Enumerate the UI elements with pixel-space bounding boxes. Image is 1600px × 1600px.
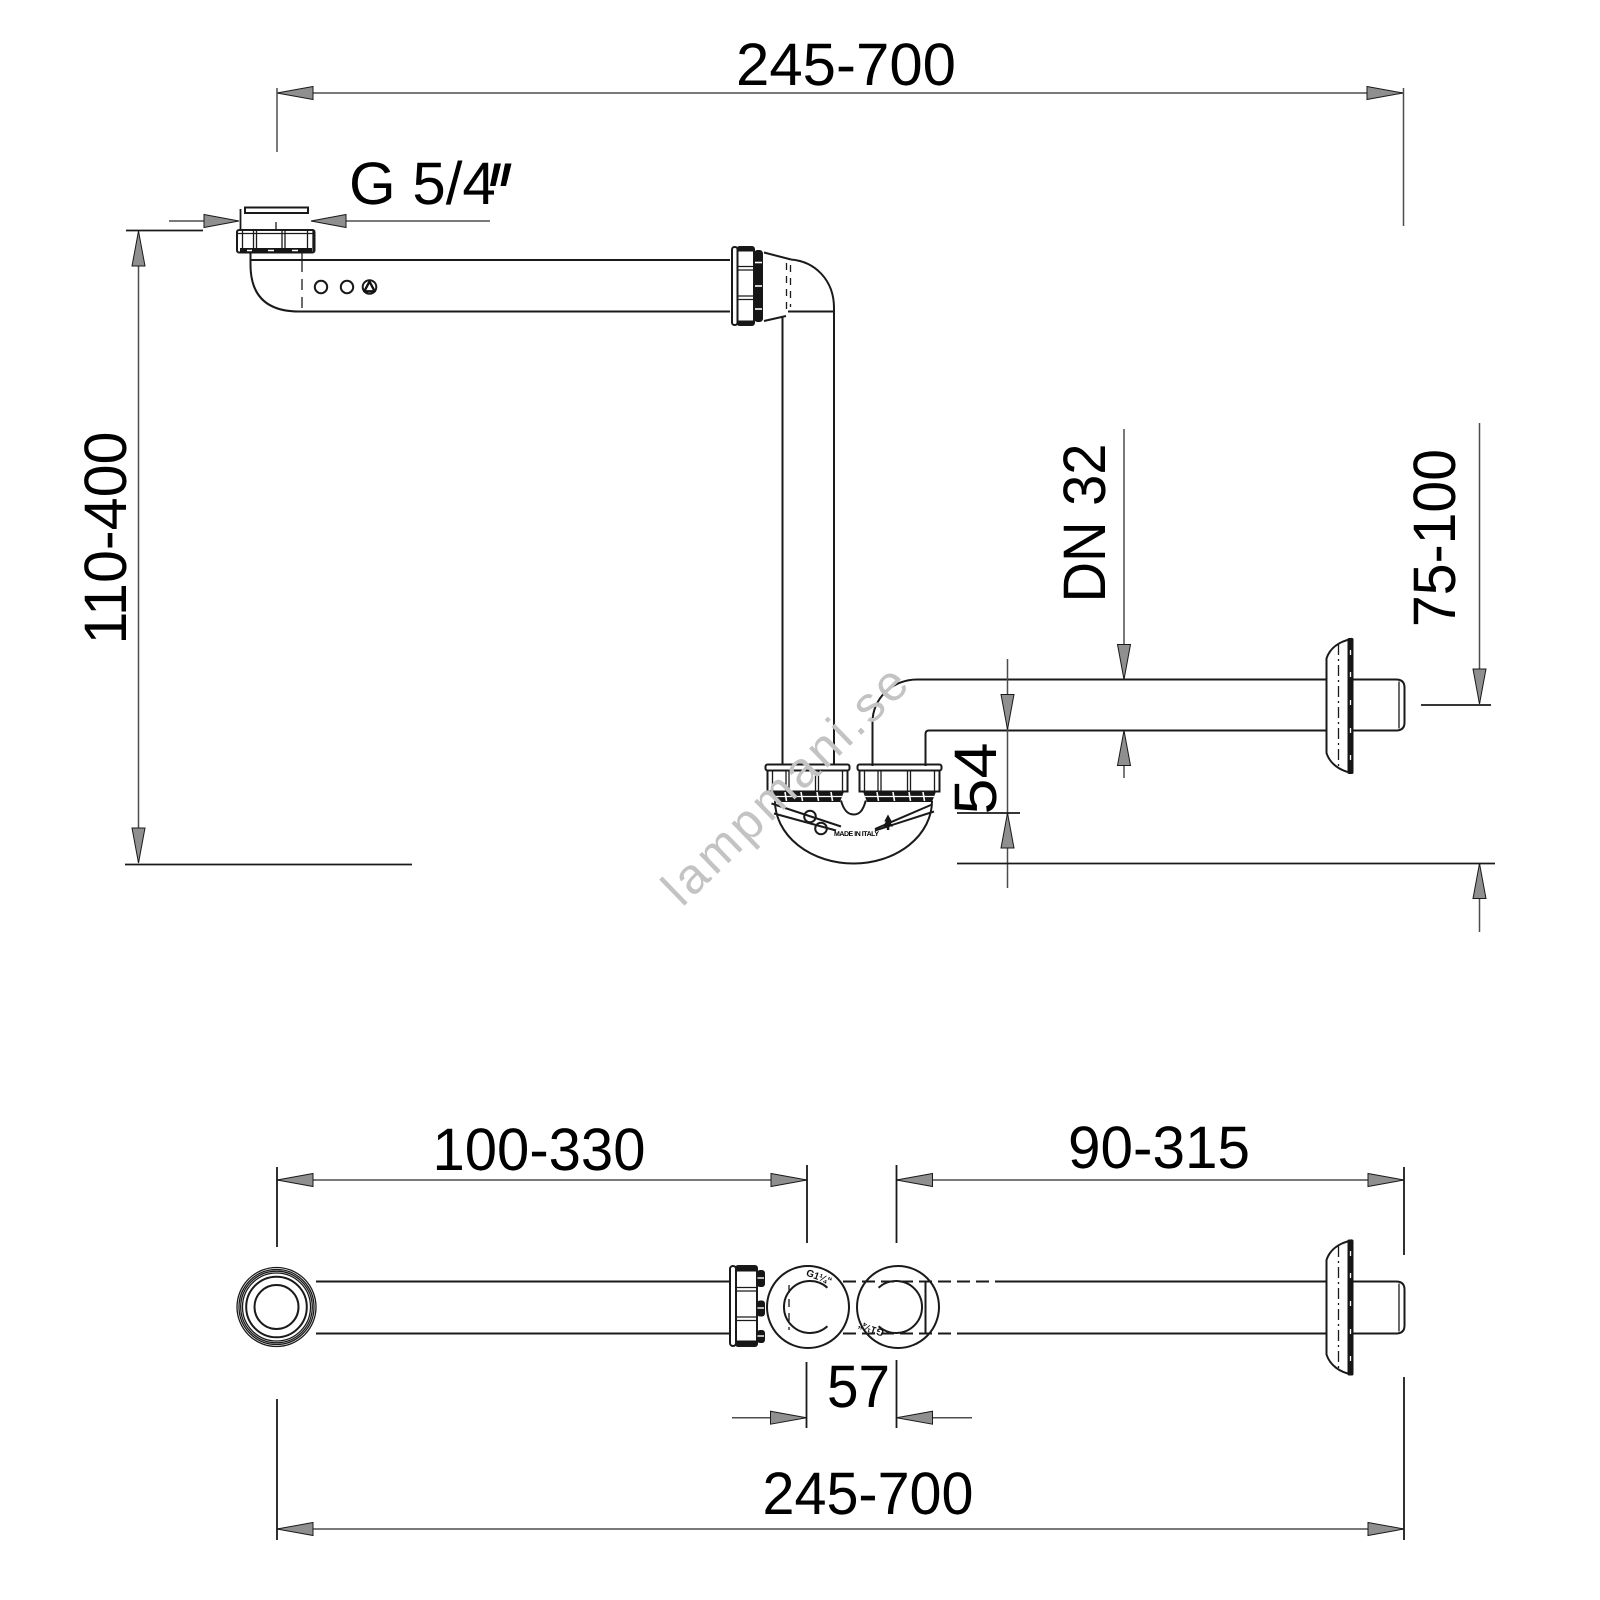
svg-text:54: 54 <box>942 743 1009 815</box>
svg-text:110-400: 110-400 <box>72 432 139 645</box>
svg-text:75-100: 75-100 <box>1401 449 1468 627</box>
svg-text:90-315: 90-315 <box>1068 1114 1250 1181</box>
svg-text:245-700: 245-700 <box>763 1460 974 1527</box>
svg-text:57: 57 <box>827 1353 890 1420</box>
svg-text:G 5/4: G 5/4 <box>349 150 496 217</box>
svg-text:MADE IN ITALY: MADE IN ITALY <box>834 831 879 838</box>
svg-text:DN 32: DN 32 <box>1051 444 1118 603</box>
svg-text:245-700: 245-700 <box>736 31 956 98</box>
svg-text:100-330: 100-330 <box>433 1116 646 1183</box>
